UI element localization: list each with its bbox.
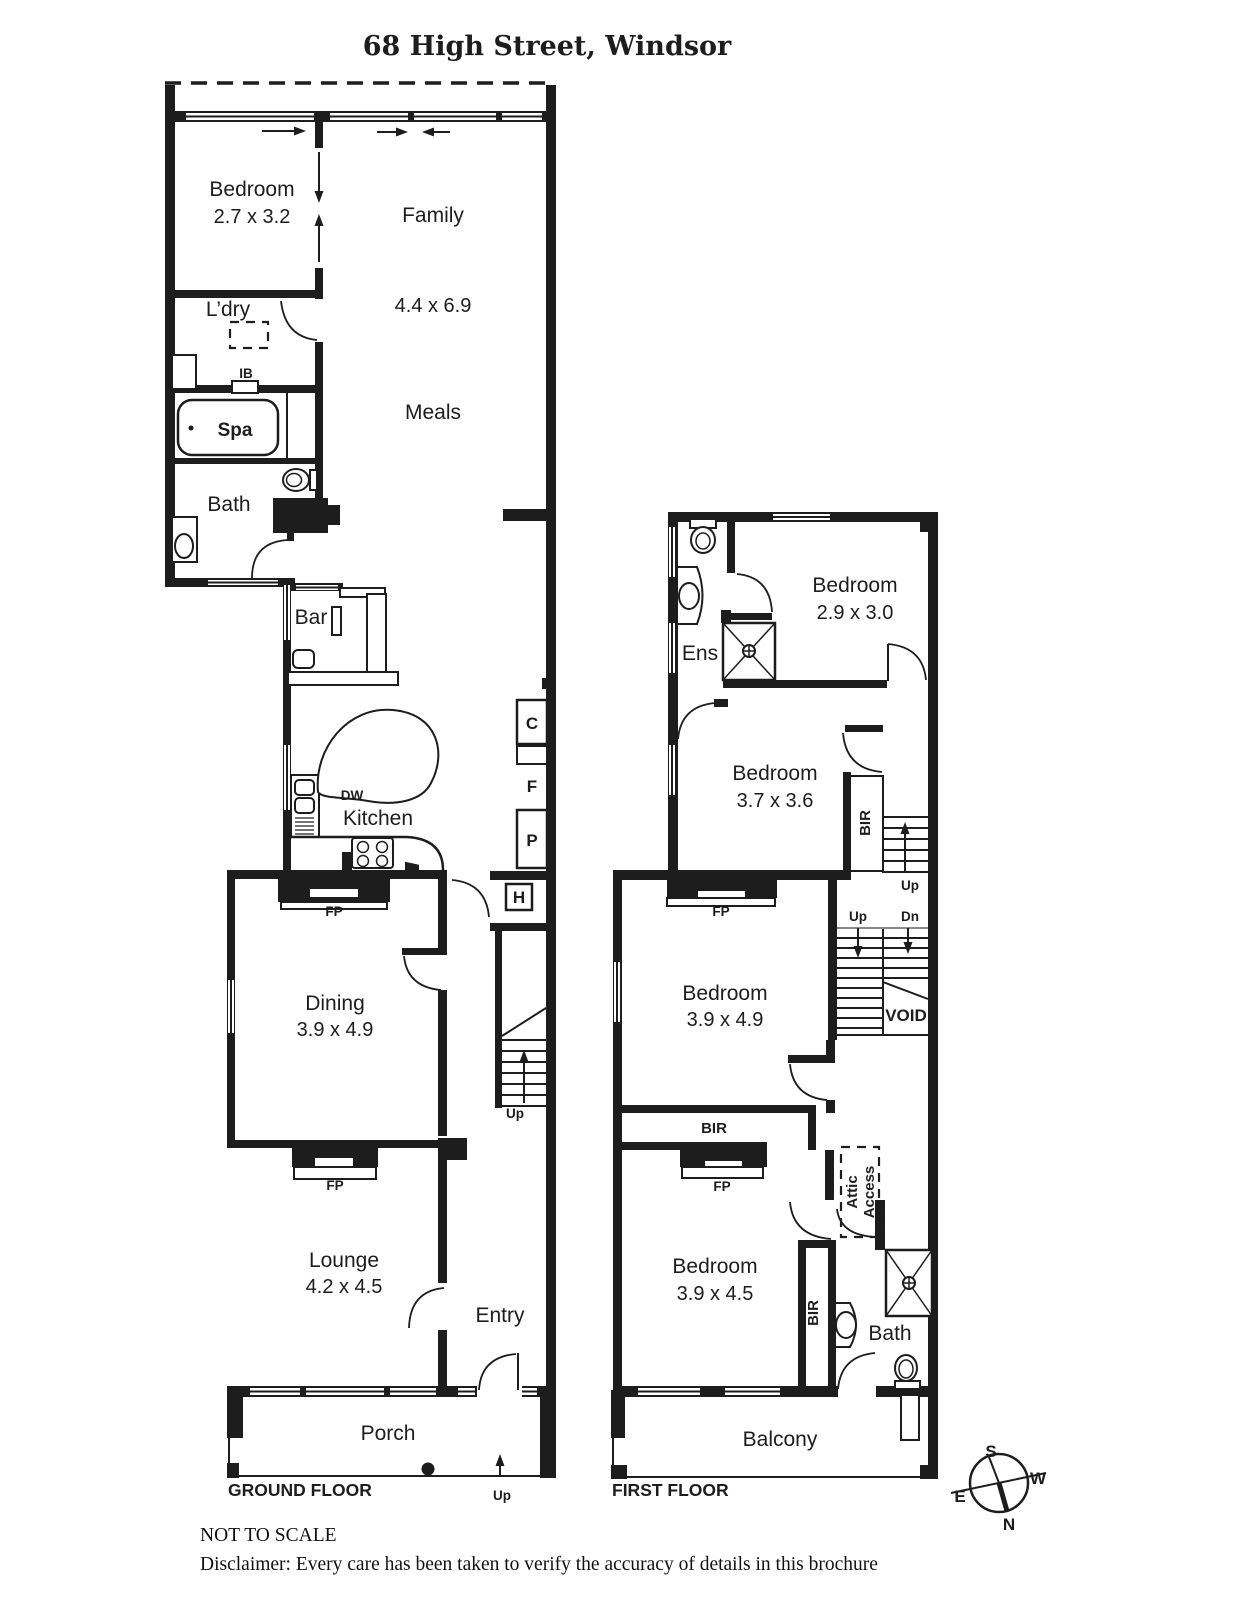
- room-label-porch: Porch: [361, 1422, 416, 1445]
- compass-w: W: [1030, 1469, 1047, 1488]
- room-dims-bedroom-g: 2.7 x 3.2: [214, 206, 291, 228]
- label-attic-line2: Access: [861, 1166, 878, 1219]
- fireplace-bed4-hearth: [682, 1167, 763, 1178]
- bar-counter-base: [288, 672, 398, 685]
- label-hws: H: [513, 888, 525, 907]
- brochure-page: 68 High Street, Windsor: [0, 0, 1236, 1600]
- label-bir-bed3: BIR: [701, 1120, 727, 1137]
- label-fireplace-dining: FP: [325, 904, 342, 919]
- room-label-bedroom1: Bedroom: [812, 574, 897, 597]
- label-fireplace-lounge: FP: [326, 1178, 343, 1193]
- kitchen-island-bench: [318, 710, 439, 803]
- room-label-bedroom-g: Bedroom: [209, 178, 294, 201]
- cupboard-doors: [517, 746, 547, 764]
- porch-post-dot: [422, 1463, 435, 1476]
- room-dims-family: 4.4 x 6.9: [395, 295, 472, 317]
- label-cupboard: C: [526, 714, 538, 733]
- ib-box: [232, 381, 258, 393]
- room-label-kitchen: Kitchen: [343, 807, 413, 830]
- compass-e: E: [954, 1487, 965, 1506]
- first-floor-plan: Bedroom 2.9 x 3.0 Ens Bedroom 3.7 x 3.6 …: [611, 512, 938, 1500]
- ground-floor-title: GROUND FLOOR: [228, 1480, 372, 1500]
- first-floor-title: FIRST FLOOR: [612, 1480, 729, 1500]
- label-up-stairs-g: Up: [506, 1106, 524, 1121]
- laundry-appliance-dashed: [230, 322, 268, 348]
- room-label-family: Family: [402, 204, 464, 227]
- room-dims-bedroom2: 3.7 x 3.6: [737, 790, 814, 812]
- label-fireplace-bed3: FP: [712, 904, 729, 919]
- room-label-entry: Entry: [475, 1304, 525, 1327]
- room-label-bedroom3: Bedroom: [682, 982, 767, 1005]
- room-label-laundry: L’dry: [206, 298, 251, 321]
- spa-drain: [189, 426, 194, 431]
- label-ib: IB: [239, 366, 253, 381]
- room-label-balcony: Balcony: [743, 1428, 818, 1451]
- ens-basin: [679, 583, 699, 609]
- bar-shelf: [332, 607, 341, 635]
- label-up-top: Up: [901, 878, 919, 893]
- label-up-porch: Up: [493, 1488, 511, 1503]
- bath-basin-ff: [836, 1312, 856, 1338]
- room-label-bath-ff: Bath: [868, 1322, 911, 1345]
- floorplan-canvas: 68 High Street, Windsor: [0, 0, 1236, 1600]
- footer: NOT TO SCALE Disclaimer: Every care has …: [200, 1525, 878, 1575]
- bath-basin: [175, 534, 193, 558]
- room-dims-bedroom3: 3.9 x 4.9: [687, 1009, 764, 1031]
- page-title: 68 High Street, Windsor: [363, 31, 732, 62]
- label-bir-bed4: BIR: [805, 1300, 822, 1326]
- fireplace-dining-slot: [310, 889, 358, 897]
- bar-sink: [293, 650, 314, 668]
- room-label-bedroom2: Bedroom: [732, 762, 817, 785]
- label-pantry: P: [526, 831, 537, 850]
- disclaimer-text: Disclaimer: Every care has been taken to…: [200, 1554, 878, 1575]
- compass-s: S: [985, 1442, 996, 1461]
- label-fridge: F: [527, 777, 537, 796]
- room-label-bar: Bar: [295, 606, 328, 629]
- laundry-trough: [172, 355, 196, 389]
- kitchen-sink-bowl-2: [295, 798, 314, 813]
- label-spa: Spa: [218, 420, 253, 441]
- label-up-mid: Up: [849, 909, 867, 924]
- room-dims-bedroom4: 3.9 x 4.5: [677, 1283, 754, 1305]
- label-void: VOID: [885, 1006, 927, 1025]
- label-dn: Dn: [901, 909, 919, 924]
- label-fireplace-bed4: FP: [713, 1179, 730, 1194]
- room-dims-lounge: 4.2 x 4.5: [306, 1276, 383, 1298]
- ground-floor-plan: Bedroom 2.7 x 3.2 Family 4.4 x 6.9 Meals…: [165, 83, 556, 1503]
- fireplace-bed3-slot: [698, 891, 745, 898]
- room-label-lounge: Lounge: [309, 1249, 379, 1272]
- room-label-meals: Meals: [405, 401, 461, 424]
- fireplace-lounge-slot: [315, 1158, 353, 1166]
- room-dims-bedroom1: 2.9 x 3.0: [817, 602, 894, 624]
- compass: S W E N: [951, 1442, 1047, 1534]
- room-dims-dining: 3.9 x 4.9: [297, 1019, 374, 1041]
- room-label-ens: Ens: [682, 642, 718, 665]
- room-label-bedroom4: Bedroom: [672, 1255, 757, 1278]
- label-dishwasher: DW: [341, 788, 364, 803]
- label-attic-line1: Attic: [844, 1175, 861, 1208]
- not-to-scale-note: NOT TO SCALE: [200, 1525, 337, 1546]
- bar-counter-side: [367, 594, 386, 674]
- room-label-bath-g: Bath: [207, 493, 250, 516]
- label-bir-bed2: BIR: [857, 810, 874, 836]
- room-label-dining: Dining: [305, 992, 365, 1015]
- bath-toilet-pedestal: [895, 1381, 920, 1389]
- kitchen-sink-bowl-1: [295, 780, 314, 795]
- compass-n: N: [1003, 1515, 1015, 1534]
- balcony-pier: [901, 1395, 919, 1440]
- toilet-cistern: [310, 470, 317, 490]
